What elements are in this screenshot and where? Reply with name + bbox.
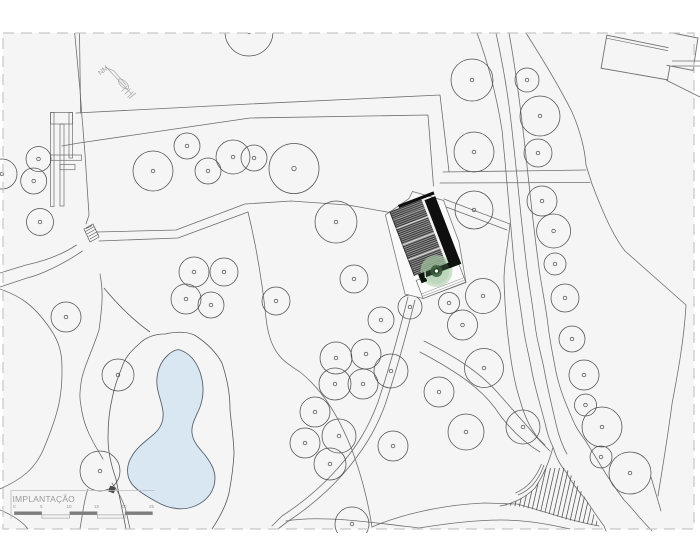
svg-text:5: 5 (40, 504, 43, 509)
svg-text:25: 25 (149, 504, 155, 509)
svg-text:0: 0 (13, 504, 16, 509)
svg-text:20: 20 (122, 504, 128, 509)
svg-text:IMPLANTAÇÃO: IMPLANTAÇÃO (13, 494, 76, 504)
svg-text:15: 15 (94, 504, 100, 509)
svg-text:10: 10 (67, 504, 73, 509)
